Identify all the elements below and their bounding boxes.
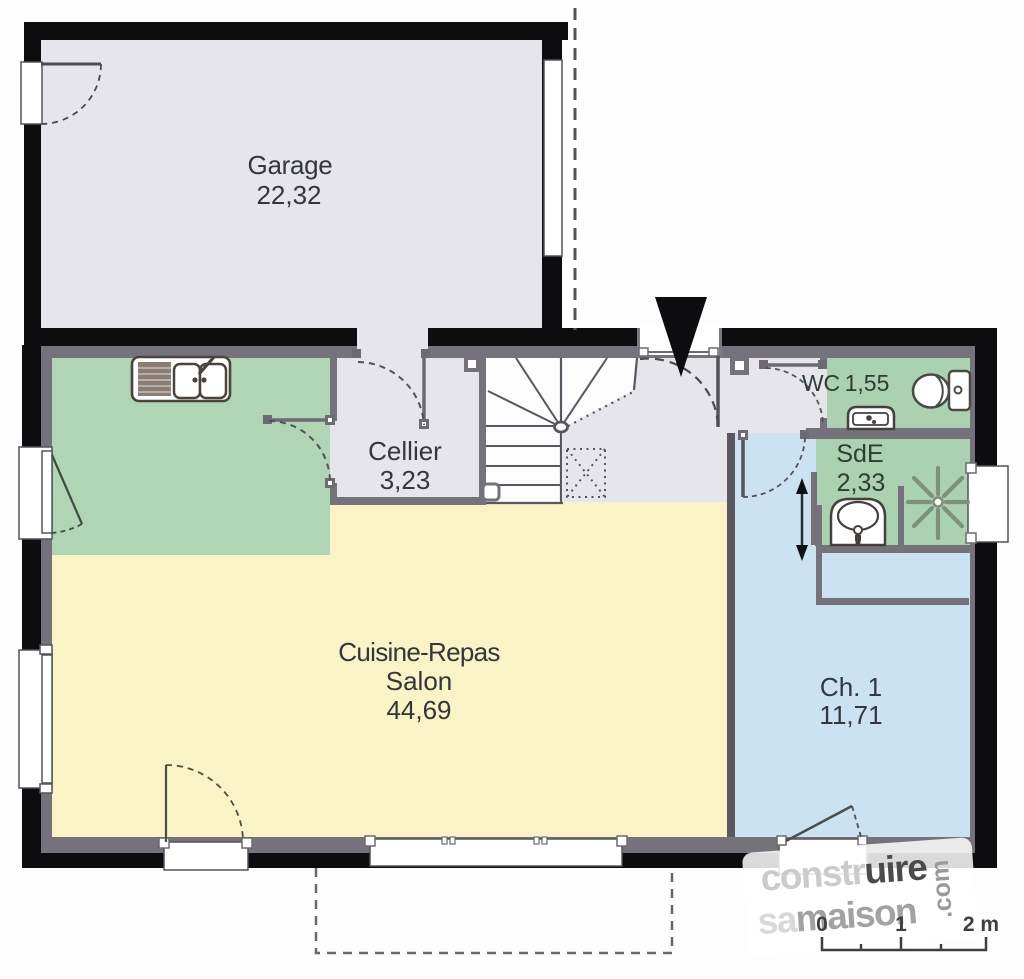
svg-text:1,55: 1,55 bbox=[845, 370, 890, 396]
svg-text:WC: WC bbox=[802, 370, 840, 396]
svg-text:Garage: Garage bbox=[248, 150, 333, 180]
svg-text:1: 1 bbox=[895, 913, 907, 936]
svg-text:11,71: 11,71 bbox=[819, 700, 882, 730]
svg-text:Salon: Salon bbox=[386, 666, 453, 696]
svg-text:3,23: 3,23 bbox=[380, 465, 431, 495]
svg-text:Cellier: Cellier bbox=[368, 436, 442, 466]
svg-text:44,69: 44,69 bbox=[386, 695, 451, 725]
svg-text:SdE: SdE bbox=[836, 440, 883, 468]
svg-text:2,33: 2,33 bbox=[837, 469, 886, 497]
svg-text:2 m: 2 m bbox=[963, 913, 999, 936]
svg-text:Ch. 1: Ch. 1 bbox=[820, 672, 882, 702]
svg-text:.com: .com bbox=[926, 859, 958, 919]
svg-text:22,32: 22,32 bbox=[256, 180, 321, 210]
svg-text:0: 0 bbox=[816, 913, 828, 936]
svg-text:Cuisine-Repas: Cuisine-Repas bbox=[338, 637, 500, 667]
